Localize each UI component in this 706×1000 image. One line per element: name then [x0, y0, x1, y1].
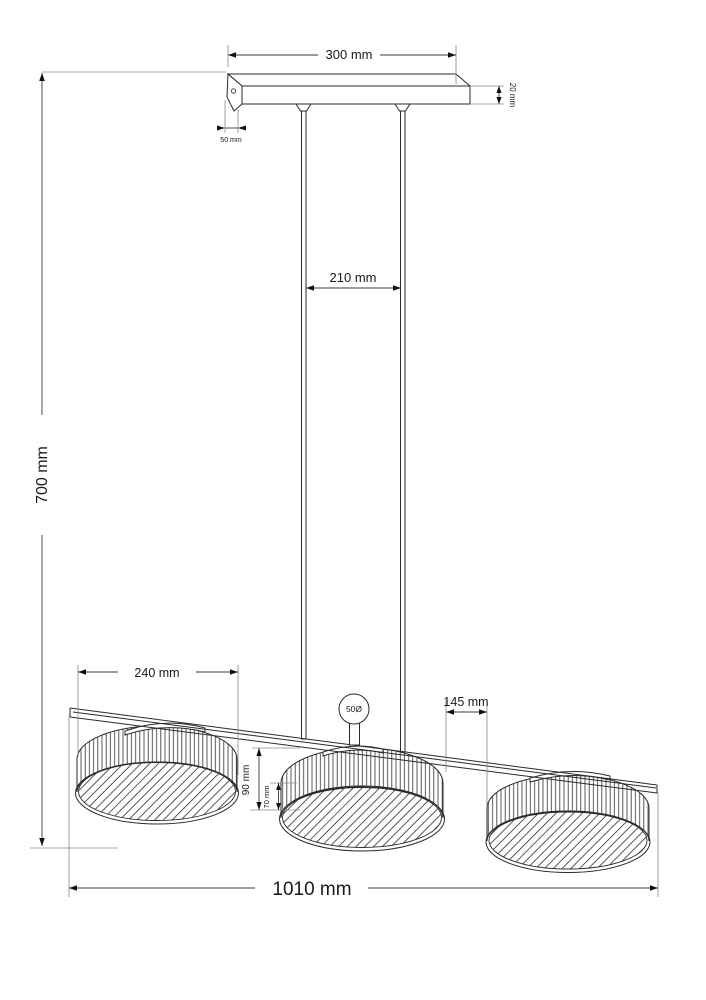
dimension-canopy-thickness: 20 mm: [470, 83, 517, 108]
dimension-rod-spacing: 210 mm: [306, 270, 401, 291]
ball-joint: 50Ø: [339, 694, 369, 745]
shade-overall-height-label: 90 mm: [241, 765, 252, 796]
canopy-width-label: 300 mm: [326, 47, 373, 62]
canopy-thickness-label: 20 mm: [508, 83, 517, 108]
canopy-depth-label: 50 mm: [220, 137, 242, 144]
suspension-rod-left: [296, 104, 311, 739]
shade-left: [76, 723, 239, 824]
dimension-shade-gap: 145 mm: [443, 695, 488, 806]
ceiling-canopy: [227, 74, 470, 111]
shade-right: [486, 771, 650, 872]
rod-spacing-label: 210 mm: [330, 270, 377, 285]
overall-length-label: 1010 mm: [272, 879, 351, 900]
suspension-rod-right: [395, 104, 410, 752]
shade-diameter-label: 240 mm: [134, 666, 179, 680]
pendant-lamp-drawing: 50Ø 300 mm 20 mm 50 mm 210 m: [0, 0, 706, 1000]
ball-joint-diameter-label: 50Ø: [346, 704, 362, 714]
shade-body-height-label: 70 mm: [262, 786, 271, 809]
overall-height-label: 700 mm: [34, 446, 51, 504]
technical-drawing-page: 50Ø 300 mm 20 mm 50 mm 210 m: [0, 0, 706, 1000]
shade-gap-label: 145 mm: [443, 695, 488, 709]
